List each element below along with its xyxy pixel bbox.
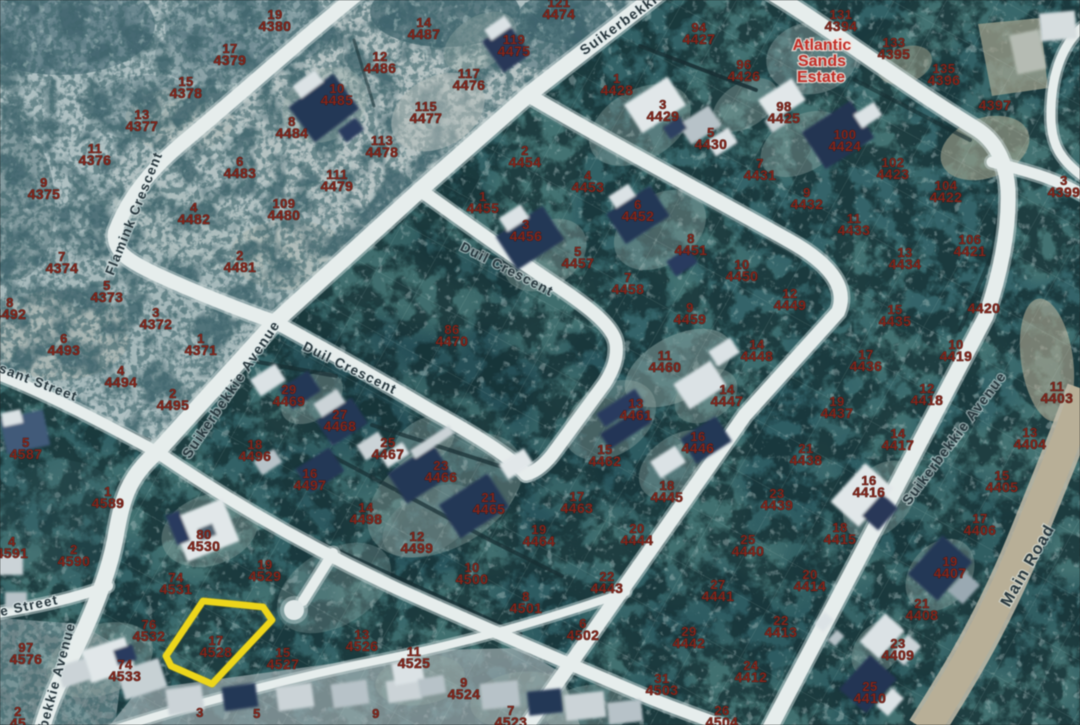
svg-text:4420: 4420 <box>968 300 1001 316</box>
svg-text:9: 9 <box>372 706 380 721</box>
svg-text:AtlanticSandsEstate: AtlanticSandsEstate <box>793 37 852 86</box>
svg-text:5: 5 <box>253 706 261 721</box>
svg-text:4397: 4397 <box>979 97 1012 113</box>
svg-text:3: 3 <box>196 705 204 720</box>
